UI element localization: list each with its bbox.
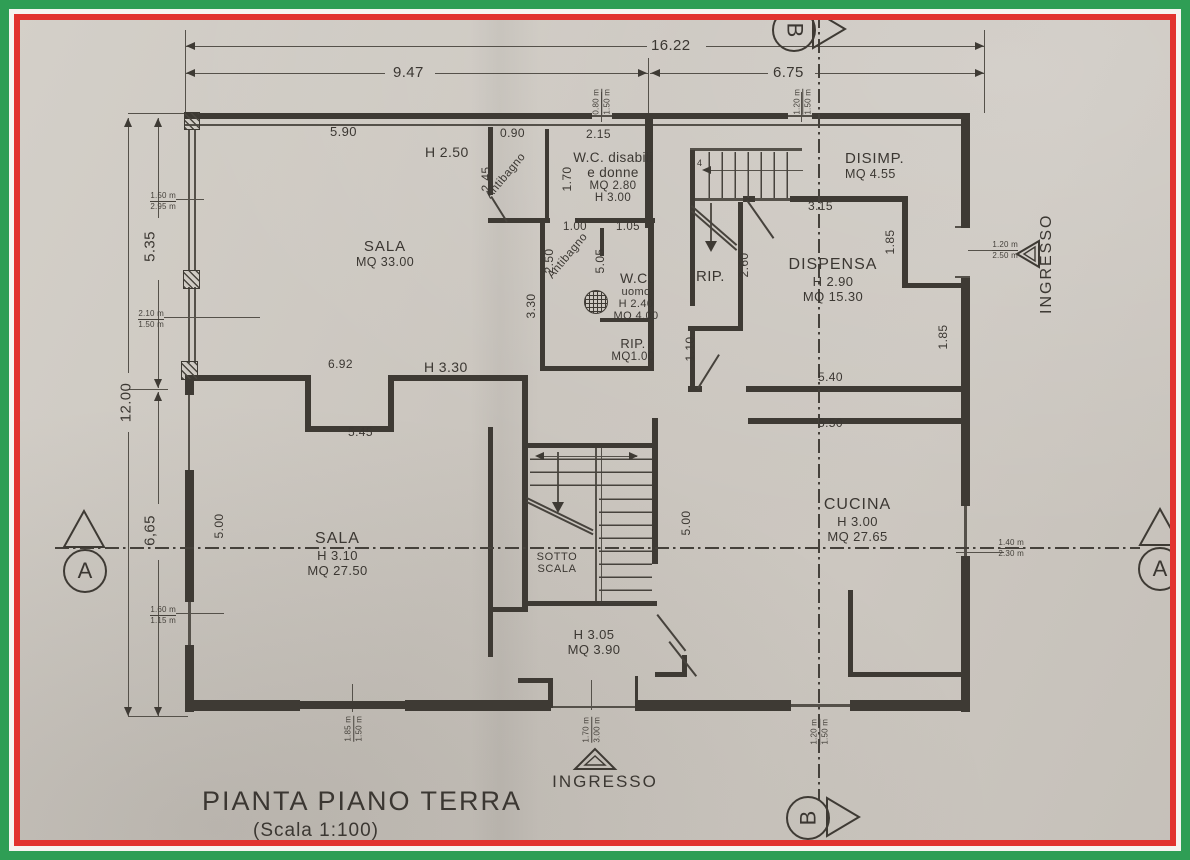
- dim-label: 1.00: [563, 221, 587, 233]
- opening-note-line1: 1.70 m: [581, 717, 592, 743]
- dim-line-right-width: [650, 73, 768, 74]
- room-name: uomo: [606, 286, 666, 298]
- room-label-dispensa: DISPENSA H 2.90 MQ 15.30: [768, 256, 898, 304]
- stair-width-arrowhead: [629, 452, 638, 460]
- stair-arrowhead-down: [552, 502, 564, 513]
- door-leaf: [747, 200, 775, 239]
- wall-right: [961, 556, 970, 712]
- section-letter: A: [78, 558, 93, 584]
- leader-line: [164, 317, 260, 318]
- room-name: e donne: [558, 165, 668, 180]
- dim-line-right-width: [815, 73, 985, 74]
- dim-total-height: 12.00: [118, 377, 135, 429]
- stair-edge: [690, 148, 802, 151]
- extension-line: [984, 30, 985, 113]
- room-label-under-stair: H 3.05 MQ 3.90: [556, 627, 632, 657]
- section-line-a: [55, 547, 1140, 549]
- stairs-main-treads: [599, 487, 652, 603]
- wall-segment: [548, 678, 553, 708]
- dim-arrowhead: [975, 42, 984, 50]
- room-label-cucina: CUCINA H 3.00 MQ 27.65: [795, 496, 920, 544]
- wall-bottom: [405, 700, 551, 711]
- dim-label: 5.05: [593, 241, 607, 281]
- dim-arrowhead: [638, 69, 647, 77]
- opening-note-bottom-entry: 1.70 m 3.00 m: [581, 712, 601, 748]
- entrance-arrow-right: [1014, 238, 1042, 270]
- wall-top: [612, 113, 788, 119]
- extension-tick: [128, 113, 188, 114]
- dim-arrowhead: [186, 69, 195, 77]
- dim-total-width: 16.22: [651, 37, 691, 54]
- dim-label: 6.92: [328, 357, 353, 371]
- room-name: W.C.: [606, 270, 666, 286]
- opening-note-bottom-right: 1.20 m 1.50 m: [809, 714, 829, 750]
- room-area: MQ 33.00: [330, 255, 440, 269]
- window-opening: [188, 602, 191, 645]
- plan-title: PIANTA PIANO TERRA: [202, 786, 522, 817]
- opening-note-line2: 1.50 m: [602, 89, 611, 115]
- room-area: MQ 4.55: [845, 167, 905, 181]
- dim-label: 0.90: [500, 126, 525, 140]
- wall-segment: [902, 202, 908, 288]
- dim-label: 5.50: [818, 416, 843, 430]
- section-marker-b-top-triangle: [810, 7, 848, 51]
- dim-line-total-height: [128, 118, 129, 373]
- room-area: MQ1.00: [602, 351, 664, 363]
- stairs-upper-treads: [697, 152, 799, 198]
- opening-note-line1: 1.60 m: [150, 605, 176, 616]
- window-opening: [194, 287, 196, 363]
- room-name: SCALA: [527, 563, 587, 575]
- wall-top: [812, 113, 970, 119]
- section-marker-b-bottom-triangle: [824, 795, 862, 839]
- door-opening: [188, 395, 190, 471]
- dim-label: H 3.30: [424, 359, 468, 375]
- wall-segment: [388, 375, 526, 381]
- section-letter: B: [781, 23, 807, 38]
- room-name: SALA: [280, 530, 395, 548]
- dim-label: 5.90: [330, 124, 357, 139]
- pillar-hatched: [181, 361, 198, 380]
- dim-arrowhead: [651, 69, 660, 77]
- wall-segment: [540, 366, 654, 371]
- dim-arrowhead: [124, 118, 132, 127]
- pillar-hatched: [183, 270, 200, 289]
- section-letter: B: [795, 811, 821, 826]
- dim-label: 2.60: [737, 245, 751, 285]
- wall-segment: [748, 418, 962, 424]
- opening-note-line2: 2.95 m: [150, 202, 176, 211]
- opening-note-line2: 2.30 m: [998, 549, 1024, 558]
- room-label-sotto-scala: SOTTO SCALA: [527, 551, 587, 575]
- stair-rail-diagonal: [691, 205, 737, 246]
- dim-line-total-height: [128, 432, 129, 716]
- dim-line-upper-height: [158, 280, 159, 388]
- wall-segment: [652, 418, 658, 564]
- dim-arrowhead: [124, 707, 132, 716]
- wall-segment: [848, 672, 965, 677]
- room-name: CUCINA: [795, 496, 920, 514]
- wall-segment: [488, 607, 493, 657]
- wall-segment: [518, 678, 552, 683]
- room-height: H 3.05: [556, 627, 632, 642]
- extension-line: [648, 58, 649, 115]
- dim-line-left-width: [435, 73, 648, 74]
- dim-label: 1.05: [616, 221, 640, 233]
- opening-note-line1: 1.85 m: [343, 716, 354, 742]
- room-area: MQ 27.65: [795, 529, 920, 544]
- wall-segment: [545, 129, 549, 219]
- section-line-b: [818, 14, 820, 800]
- dim-label: 1.10: [683, 329, 697, 369]
- dim-arrowhead: [154, 379, 162, 388]
- window-opening: [791, 704, 850, 707]
- room-height: H 3.00: [795, 514, 920, 529]
- opening-note-top-center: 0.80 m 1.50 m: [591, 84, 611, 120]
- room-name: DISIMP.: [845, 150, 905, 167]
- opening-note-line2: 1.50 m: [354, 716, 363, 742]
- dim-label: 1.85: [936, 317, 950, 357]
- room-label-wc-disabili: W.C. disabili e donne MQ 2.80 H 3.00: [558, 150, 668, 204]
- opening-note-line2: 1.15 m: [150, 616, 176, 625]
- opening-note-line1: 1.20 m: [792, 89, 803, 115]
- door-opening: [551, 706, 635, 708]
- opening-note-line2: 1.50 m: [138, 320, 164, 329]
- opening-note-right-kitchen: 1.40 m 2.30 m: [992, 538, 1024, 558]
- dim-label: 2.15: [586, 127, 611, 141]
- wall-top-inner: [185, 124, 970, 126]
- room-area: MQ 27.50: [280, 563, 395, 578]
- room-name: W.C. disabili: [558, 150, 668, 165]
- opening-note-line2: 1.50 m: [803, 89, 812, 115]
- wall-bottom: [635, 700, 791, 711]
- wall-right: [961, 278, 970, 506]
- dim-lower-height: 6,65: [142, 511, 159, 551]
- opening-note-line1: 1.20 m: [809, 719, 820, 745]
- room-name: DISPENSA: [768, 256, 898, 274]
- window-opening: [188, 287, 190, 363]
- room-height: H 3.00: [558, 192, 668, 204]
- pillar-hatched: [184, 112, 200, 130]
- opening-note-top-right: 1.20 m 1.50 m: [792, 84, 812, 120]
- wall-segment: [305, 375, 311, 432]
- dim-line-lower-height: [158, 392, 159, 504]
- wall-segment: [688, 386, 702, 392]
- wall-segment: [848, 590, 853, 675]
- room-label-sala-top: SALA MQ 33.00: [330, 238, 440, 269]
- room-height: H 3.10: [280, 548, 395, 563]
- wall-segment: [655, 672, 685, 677]
- stair-width-arrowhead: [535, 452, 544, 460]
- dim-label: 5.00: [212, 506, 226, 546]
- window-opening: [188, 129, 190, 271]
- opening-note-left-bottom: 1.60 m 1.15 m: [140, 605, 176, 625]
- dim-label: H 2.50: [425, 144, 469, 160]
- opening-note-line2: 1.50 m: [820, 719, 829, 745]
- leader-line: [176, 613, 224, 614]
- leader-line: [176, 199, 204, 200]
- dim-line-left-width: [185, 73, 385, 74]
- wall-segment: [746, 386, 962, 392]
- dim-arrowhead: [975, 69, 984, 77]
- section-marker-a-left-triangle: [61, 508, 107, 550]
- stair-direction-arrowhead: [702, 166, 711, 174]
- wall-segment: [488, 427, 493, 607]
- wall-top: [185, 113, 592, 119]
- wall-segment: [575, 218, 655, 223]
- wall-segment: [488, 607, 528, 612]
- dim-line-total-width: [185, 46, 647, 47]
- stair-step-number: 4: [697, 158, 702, 168]
- room-label-wc-uomo: W.C. uomo H 2.40 MQ 4.00: [606, 270, 666, 322]
- wall-segment: [185, 375, 309, 381]
- dim-arrowhead: [154, 392, 162, 401]
- stair-arrowhead-down: [705, 241, 717, 252]
- opening-note-left-mid: 2.10 m 1.50 m: [128, 309, 164, 329]
- dim-arrowhead: [154, 118, 162, 127]
- dim-right-width: 6.75: [773, 64, 804, 81]
- wall-left: [185, 470, 194, 602]
- dim-label: 5.00: [679, 503, 693, 543]
- dim-label: 3.15: [808, 199, 833, 213]
- dim-upper-height: 5.35: [142, 227, 159, 267]
- opening-note-line1: 1.50 m: [150, 191, 176, 202]
- section-marker-a-right-triangle: [1137, 506, 1183, 548]
- section-marker-a-right: A: [1138, 547, 1182, 591]
- opening-note-line2: 3.00 m: [592, 717, 601, 743]
- wall-segment: [690, 150, 695, 306]
- window-sill: [300, 701, 405, 709]
- washbasin-icon: [584, 290, 608, 314]
- room-area: MQ 15.30: [768, 289, 898, 304]
- room-height: H 2.90: [768, 274, 898, 289]
- room-label-disimp: DISIMP. MQ 4.55: [845, 150, 905, 181]
- room-area: MQ 3.90: [556, 642, 632, 657]
- opening-note-bottom-left: 1.85 m 1.50 m: [343, 711, 363, 747]
- window-opening: [194, 129, 196, 271]
- wall-right: [961, 113, 970, 228]
- dim-label: 5.45: [348, 425, 373, 439]
- room-area: MQ 2.80: [558, 180, 668, 192]
- window-opening: [964, 506, 967, 556]
- dim-label: 3.30: [524, 286, 538, 326]
- room-name: SOTTO: [527, 551, 587, 563]
- dim-arrowhead: [186, 42, 195, 50]
- wall-bottom: [850, 700, 970, 711]
- dim-left-width: 9.47: [393, 64, 424, 81]
- wall-segment: [902, 283, 961, 288]
- wall-segment: [388, 375, 394, 432]
- section-letter: A: [1153, 556, 1168, 582]
- dim-label: 5.40: [818, 370, 843, 384]
- opening-note-line1: 1.40 m: [998, 538, 1024, 549]
- room-label-rip-right: RIP.: [696, 268, 725, 285]
- wall-bottom: [185, 700, 300, 711]
- plan-scale: (Scala 1:100): [253, 820, 379, 842]
- wall-segment: [635, 676, 638, 710]
- entrance-arrow-bottom: [572, 746, 618, 772]
- floor-plan-scan: 16.22 9.47 6.75 5.35 6,65 12.00: [0, 0, 1190, 860]
- opening-note-line1: 0.80 m: [591, 89, 602, 115]
- room-label-sala-bottom: SALA H 3.10 MQ 27.50: [280, 530, 395, 578]
- door-leaf: [697, 354, 720, 389]
- extension-tick: [128, 716, 188, 717]
- room-name: RIP.: [602, 336, 664, 351]
- dim-line-lower-height: [158, 560, 159, 716]
- room-area: MQ 4.00: [606, 310, 666, 322]
- dim-arrowhead: [154, 707, 162, 716]
- leader-line: [591, 680, 592, 710]
- section-marker-a-left: A: [63, 549, 107, 593]
- room-label-rip-small: RIP. MQ1.00: [602, 336, 664, 363]
- opening-note-left-top: 1.50 m 2.95 m: [140, 191, 176, 211]
- room-name: SALA: [330, 238, 440, 255]
- opening-note-line1: 2.10 m: [138, 309, 164, 320]
- room-height: H 2.40: [606, 298, 666, 310]
- entrance-label-bottom: INGRESSO: [540, 772, 670, 792]
